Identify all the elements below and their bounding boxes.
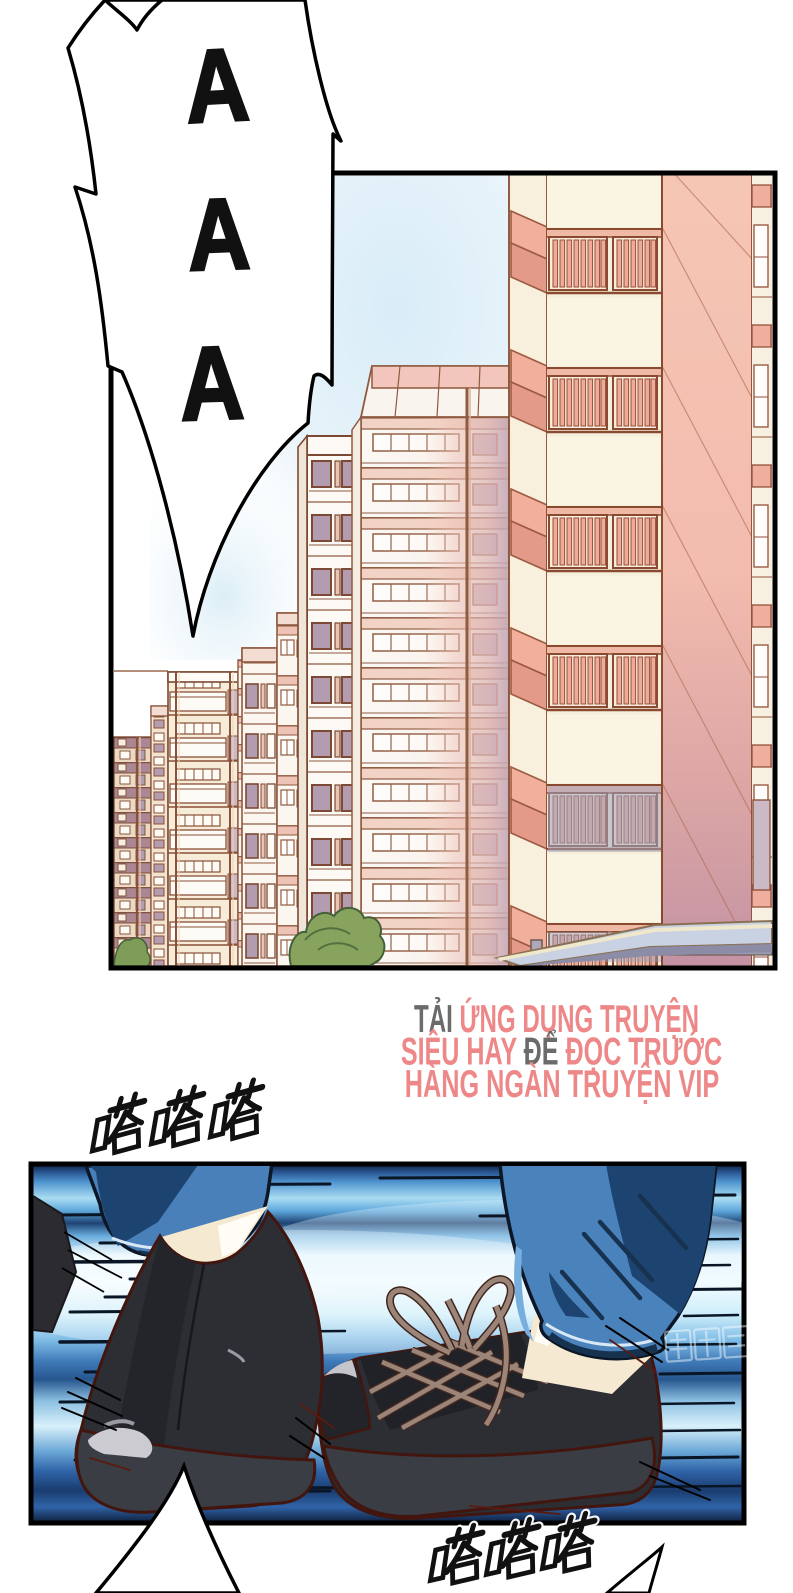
svg-text:A: A <box>183 27 252 145</box>
svg-text:A: A <box>186 176 252 291</box>
svg-text:HÀNG NGÀN TRUYỆN VIP: HÀNG NGÀN TRUYỆN VIP <box>405 1061 720 1105</box>
svg-text:A: A <box>178 325 246 442</box>
